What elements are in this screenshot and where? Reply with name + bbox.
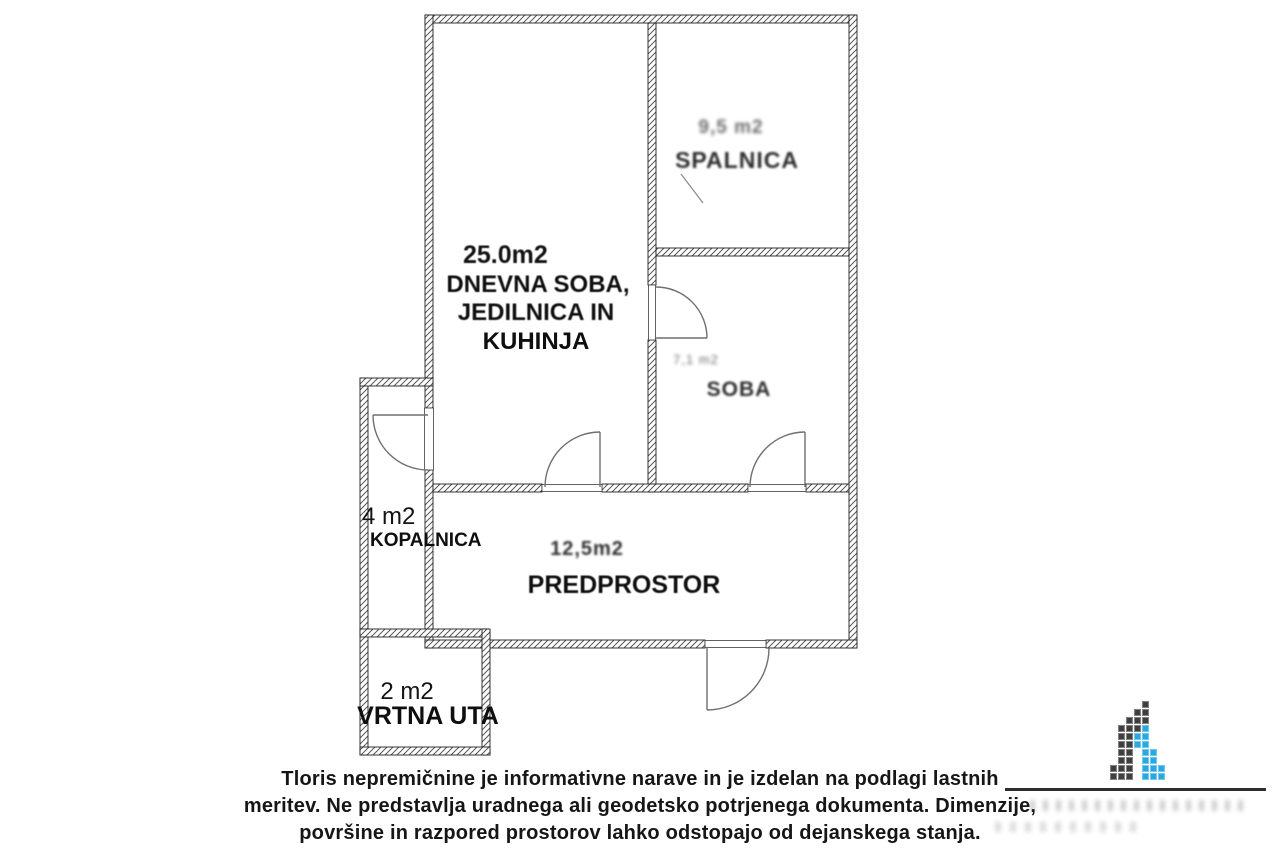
logo-pixel xyxy=(1134,733,1141,740)
logo-pixel xyxy=(1158,765,1165,772)
logo-pixel xyxy=(1134,741,1141,748)
logo-pixel xyxy=(1118,757,1125,764)
small-room-name: SOBA xyxy=(707,378,772,402)
living-room-area: 25.0m2 xyxy=(463,241,548,270)
logo-pixel xyxy=(1126,765,1133,772)
logo-pixel xyxy=(1142,725,1149,732)
logo-pixel xyxy=(1142,733,1149,740)
logo-pixel xyxy=(1142,741,1149,748)
logo-pixel xyxy=(1110,773,1117,780)
logo-pixel xyxy=(1118,773,1125,780)
logo-pixel xyxy=(1150,749,1157,756)
logo-pixel xyxy=(1142,749,1149,756)
bedroom-area: 9,5 m2 xyxy=(698,117,763,139)
floor-plan-drawing xyxy=(0,0,1280,854)
walls xyxy=(360,15,857,755)
small-room-side-door xyxy=(656,287,707,338)
illegible-logo-caption-2 xyxy=(995,822,1145,832)
logo-pixel xyxy=(1150,757,1157,764)
logo-pixel xyxy=(1126,725,1133,732)
hall-area: 12,5m2 xyxy=(550,538,624,561)
illegible-logo-caption xyxy=(1030,800,1245,811)
logo-pixel xyxy=(1142,717,1149,724)
logo-pixel xyxy=(1118,725,1125,732)
small-room-hall-door xyxy=(750,432,805,487)
logo-pixel xyxy=(1134,725,1141,732)
garden-shed-name: VRTNA UTA xyxy=(357,702,499,731)
logo-pixel xyxy=(1126,733,1133,740)
bathroom-name: KOPALNICA xyxy=(370,530,482,552)
logo-pixel xyxy=(1126,757,1133,764)
logo-pixel xyxy=(1126,717,1133,724)
hall-name: PREDPROSTOR xyxy=(528,571,721,600)
logo-pixel xyxy=(1142,765,1149,772)
logo-pixel xyxy=(1118,749,1125,756)
logo-pixel xyxy=(1126,749,1133,756)
logo-pixel xyxy=(1118,733,1125,740)
entrance-door xyxy=(707,648,769,710)
living-room-name-line2: JEDILNICA IN xyxy=(458,299,614,327)
disclaimer-line2: meritev. Ne predstavlja uradnega ali geo… xyxy=(244,795,1036,818)
bedroom-name: SPALNICA xyxy=(675,147,799,174)
disclaimer-line3: površine in razpored prostorov lahko ods… xyxy=(299,822,981,845)
logo-pixel xyxy=(1150,765,1157,772)
logo-pixel xyxy=(1142,773,1149,780)
logo-pixel xyxy=(1126,741,1133,748)
logo-pixel xyxy=(1118,765,1125,772)
floor-plan-page: 25.0m2 DNEVNA SOBA, JEDILNICA IN KUHINJA… xyxy=(0,0,1280,854)
logo-pixel xyxy=(1142,709,1149,716)
bathroom-area: 4 m2 xyxy=(362,503,415,531)
logo-pixel xyxy=(1126,773,1133,780)
living-room-door xyxy=(545,432,600,487)
logo-divider-line xyxy=(1005,788,1266,791)
living-room-name-line3: KUHINJA xyxy=(483,328,590,356)
logo-pixel xyxy=(1134,709,1141,716)
small-room-area: 7,1 m2 xyxy=(673,352,719,367)
logo-pixel xyxy=(1142,701,1149,708)
living-room-name-line1: DNEVNA SOBA, xyxy=(446,271,629,299)
logo-pixel xyxy=(1142,757,1149,764)
bedroom-swing-mark xyxy=(681,174,703,203)
bathroom-door xyxy=(373,415,428,470)
logo-pixel xyxy=(1158,773,1165,780)
logo-pixel xyxy=(1118,741,1125,748)
logo-pixel xyxy=(1110,765,1117,772)
logo-pixel xyxy=(1134,717,1141,724)
logo-pixel xyxy=(1150,773,1157,780)
disclaimer-line1: Tloris nepremičnine je informativne nara… xyxy=(281,768,998,791)
